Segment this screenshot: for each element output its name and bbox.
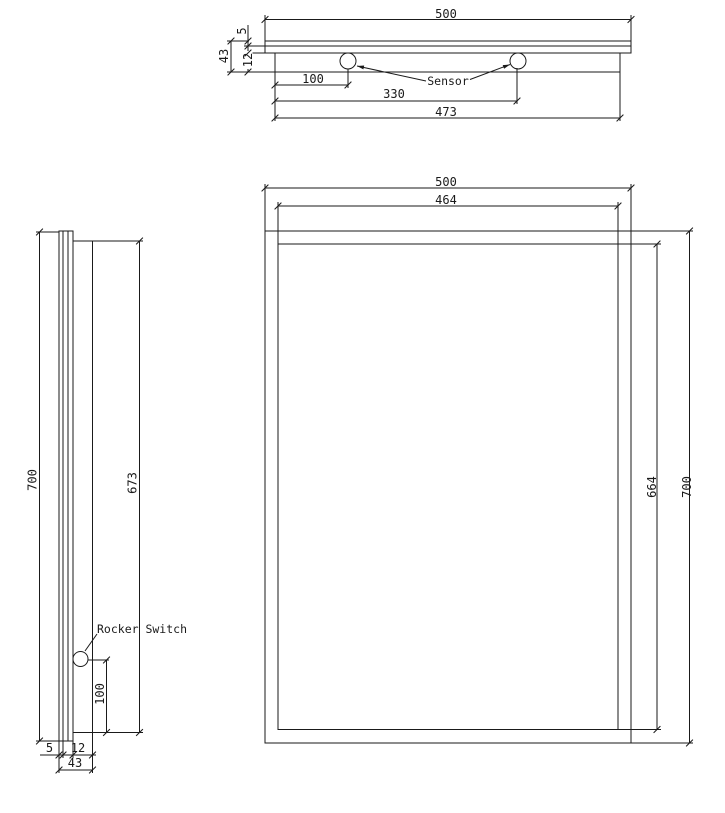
dim-top-glass-thickness: 5 (235, 27, 249, 34)
back-box-profile (275, 53, 620, 72)
glass-edge-profile (265, 41, 631, 46)
mirror-technical-drawing: 500 Sensor 100 330 473 43 5 12 (0, 0, 725, 813)
dim-top-sensor1-offset: 100 (302, 72, 324, 86)
back-box-edge-profile (73, 241, 93, 733)
dim-side-box-height: 673 (126, 472, 140, 494)
front-view: 500 464 664 700 (265, 175, 694, 743)
sensor-label: Sensor (427, 74, 469, 88)
dim-front-outer-width: 500 (435, 175, 457, 189)
dim-top-overall-depth: 43 (217, 49, 231, 63)
mirror-edge-profile (59, 231, 73, 741)
frame-lip-profile (265, 46, 631, 53)
dim-side-switch-offset: 100 (93, 683, 107, 705)
technical-drawing-canvas: 500 Sensor 100 330 473 43 5 12 (0, 0, 725, 813)
dim-top-box-depth: 12 (241, 53, 255, 67)
rocker-switch-label: Rocker Switch (97, 622, 187, 636)
dim-front-inner-height: 664 (645, 476, 659, 498)
dim-side-glass-thickness: 5 (46, 741, 53, 755)
dim-side-overall-height: 700 (26, 469, 40, 491)
dim-front-outer-height: 700 (680, 476, 694, 498)
dim-front-inner-width: 464 (435, 193, 457, 207)
mirror-glass-area (278, 244, 618, 730)
top-view: 500 Sensor 100 330 473 43 5 12 (217, 7, 631, 121)
dim-side-box-depth: 12 (71, 741, 85, 755)
dim-top-sensor2-offset: 330 (383, 87, 405, 101)
side-view: 700 673 Rocker Switch 100 5 12 43 (26, 231, 188, 773)
dim-top-overall-width: 500 (435, 7, 457, 21)
dim-top-body-width: 473 (435, 105, 457, 119)
